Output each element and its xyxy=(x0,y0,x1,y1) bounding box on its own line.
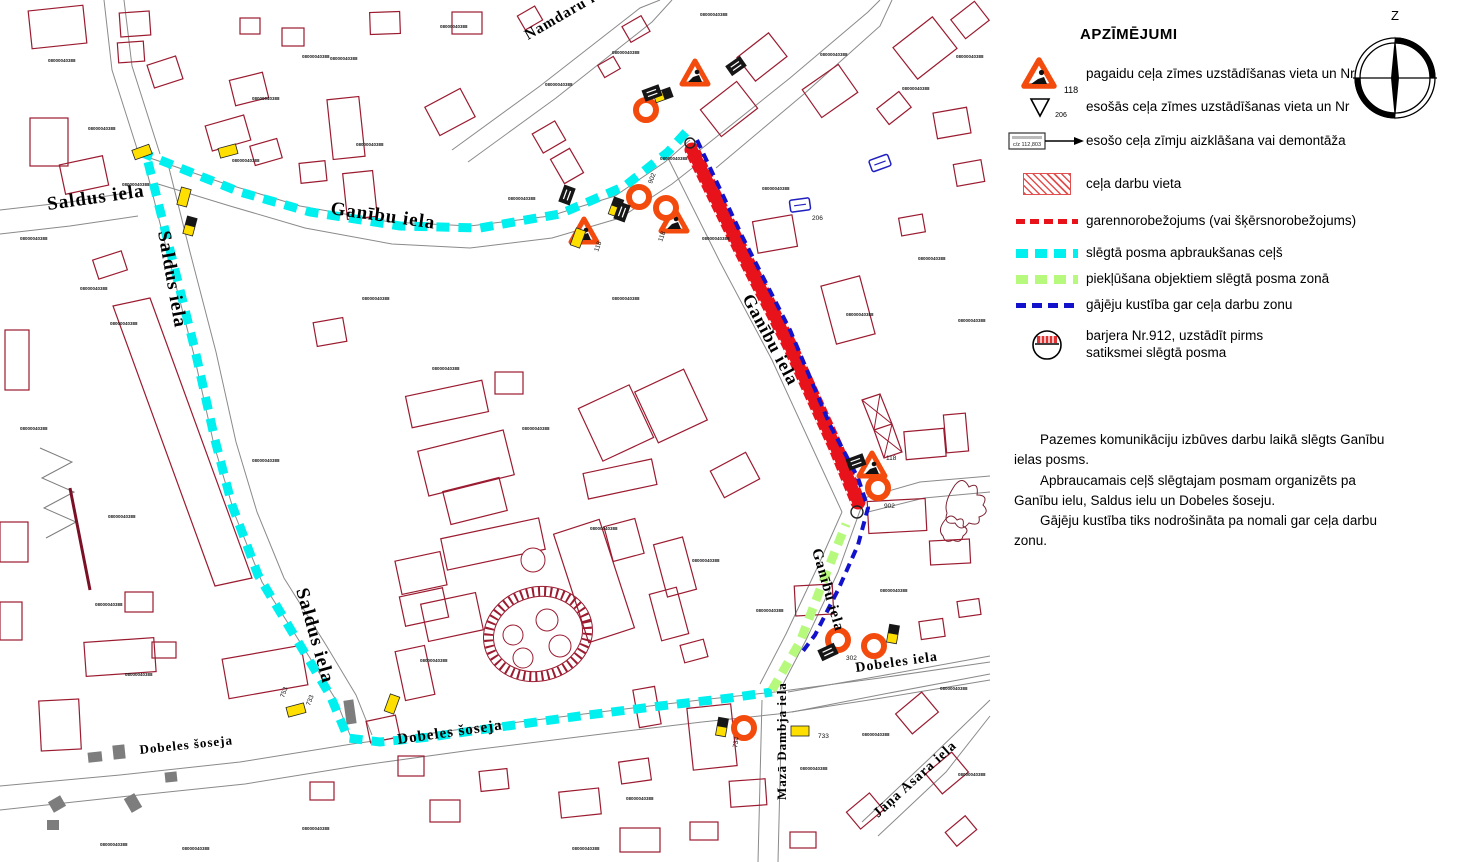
building-outline xyxy=(953,160,984,187)
building-outline xyxy=(559,788,601,818)
parcel-code: 08000040388 xyxy=(20,236,48,241)
building-outline xyxy=(532,121,566,153)
mast-tower xyxy=(862,394,902,458)
building-outline xyxy=(622,16,650,43)
parcel-code: 08000040388 xyxy=(252,96,280,101)
building-outline xyxy=(425,88,475,135)
building-outline xyxy=(30,118,68,166)
building-outline xyxy=(152,642,176,658)
sign-number: 733 xyxy=(818,733,829,740)
parcel-code: 08000040388 xyxy=(302,826,330,831)
sign-number: 118 xyxy=(886,455,897,462)
parcel-code: 08000040388 xyxy=(880,588,908,593)
building-outline xyxy=(282,28,304,46)
parcel-code: 08000040388 xyxy=(700,12,728,17)
tank xyxy=(536,609,558,631)
street-edge xyxy=(104,0,140,158)
building-outline xyxy=(554,519,635,642)
parcel-code: 08000040388 xyxy=(958,318,986,323)
street-edge xyxy=(468,0,672,162)
street-edge xyxy=(668,158,842,512)
access-route-swatch xyxy=(1016,275,1078,284)
building-outline xyxy=(943,413,968,453)
existing-sign-plate xyxy=(869,154,892,172)
parcel-code: 08000040388 xyxy=(626,796,654,801)
building-outline xyxy=(310,782,334,800)
parcel-code: 08000040388 xyxy=(362,296,390,301)
parcel-code: 08000040388 xyxy=(612,296,640,301)
building-outline xyxy=(680,639,708,663)
street-label: Ganību iela xyxy=(808,547,847,634)
building-outline xyxy=(904,428,946,459)
structure xyxy=(165,771,178,782)
sign-number: 302 xyxy=(846,655,857,662)
street-edge xyxy=(0,216,138,234)
vegetation-scribble xyxy=(946,480,986,528)
building-outline xyxy=(896,692,939,734)
structure xyxy=(47,820,59,830)
parcel-code: 08000040388 xyxy=(122,182,150,187)
building-outline xyxy=(147,56,183,88)
pedestrian-route-swatch xyxy=(1016,303,1078,308)
building-outline xyxy=(299,161,327,184)
legend-row-covered-sign: c/z 112,803 esošo ceļa zīmju aizklāšana … xyxy=(1008,128,1416,154)
sign-plate-dark xyxy=(725,56,747,76)
site-plan-map: Saldus ielaSaldus ielaSaldus ielaGanību … xyxy=(0,0,1000,862)
building-outline xyxy=(479,769,509,792)
street-label: Jāņa Asara iela xyxy=(871,738,960,821)
long-building-strip xyxy=(113,298,252,586)
parcel-code: 08000040388 xyxy=(95,602,123,607)
note-line: Pazemes komunikāciju izbūves darbu laikā… xyxy=(1014,430,1396,471)
building-outline xyxy=(39,699,82,751)
temp-sign-plate-yellow xyxy=(218,144,238,158)
building-outline xyxy=(737,33,787,81)
building-outline xyxy=(620,828,660,852)
temp-sign-plate-yellow xyxy=(183,216,197,236)
tank xyxy=(521,548,545,572)
parcel-code: 08000040388 xyxy=(522,426,550,431)
parcel-code: 08000040388 xyxy=(232,158,260,163)
building-outline xyxy=(929,539,970,565)
building-outline xyxy=(452,12,482,34)
detour-route-west xyxy=(148,162,772,742)
legend-row-red-dash: garennorobežojums (vai šķērsnorobežojums… xyxy=(1008,212,1416,230)
detour-route-swatch xyxy=(1016,249,1078,258)
street-label: Dobeles šoseja xyxy=(139,732,234,757)
sign-number: 734 xyxy=(732,736,741,748)
building-outline xyxy=(687,704,737,770)
building-outline xyxy=(598,56,621,77)
building-outline xyxy=(790,832,816,848)
temp-sign-plate-yellow xyxy=(570,228,586,248)
building-outline xyxy=(899,214,926,236)
parcel-code: 08000040388 xyxy=(100,842,128,847)
building-outline xyxy=(406,380,489,428)
temp-sign-plate-yellow xyxy=(887,624,900,643)
building-outline xyxy=(635,369,708,443)
structure xyxy=(112,744,125,759)
building-outline xyxy=(28,5,87,49)
legend-label: piekļūšana objektiem slēgtā posma zonā xyxy=(1086,271,1416,288)
parcel-code: 08000040388 xyxy=(182,846,210,851)
street-label: Mazā Dambja iela xyxy=(774,682,789,800)
parcel-code: 08000040388 xyxy=(420,658,448,663)
legend-sign-number: 206 xyxy=(1055,112,1067,119)
parcel-code: 08000040388 xyxy=(545,82,573,87)
covered-sign-icon: c/z 112,803 xyxy=(1008,129,1086,153)
building-outline xyxy=(945,816,976,847)
building-outline xyxy=(370,11,401,34)
work-area-swatch xyxy=(1023,173,1071,195)
building-outline xyxy=(125,592,153,612)
notes-block: Pazemes komunikāciju izbūves darbu laikā… xyxy=(1014,430,1396,552)
building-outline xyxy=(919,618,945,639)
parcel-code: 08000040388 xyxy=(252,458,280,463)
building-outline xyxy=(877,92,911,125)
building-outline xyxy=(0,522,28,562)
parcel-code: 08000040388 xyxy=(330,56,358,61)
parcel-code: 08000040388 xyxy=(940,686,968,691)
building-outline xyxy=(604,518,644,561)
parcel-code: 08000040388 xyxy=(48,58,76,63)
sign-number: 902 xyxy=(647,172,657,185)
legend-row-cyan-dash: slēgtā posma apbraukšanas ceļš xyxy=(1008,244,1416,262)
building-outline xyxy=(398,756,424,776)
mast-bracing xyxy=(862,394,902,458)
building-outline xyxy=(495,372,523,394)
building-outline xyxy=(240,18,260,34)
street-edge xyxy=(124,0,160,154)
building-outline xyxy=(421,593,484,642)
barrier-912-icon xyxy=(1008,328,1086,362)
temp-sign-plate-yellow xyxy=(791,726,809,736)
building-outline xyxy=(430,800,460,822)
parcel-code: 08000040388 xyxy=(660,156,688,161)
parcel-code: 08000040388 xyxy=(918,256,946,261)
barrier-912 xyxy=(636,100,656,120)
note-line: Apbraucamais ceļš slēgtajam posmam organ… xyxy=(1014,471,1396,512)
parcel-code: 08000040388 xyxy=(612,50,640,55)
building-outline xyxy=(710,452,759,497)
parcel-code: 08000040388 xyxy=(692,558,720,563)
barrier-912 xyxy=(629,187,649,207)
street-label: Dobeles šoseja xyxy=(396,717,503,748)
temp-sign-plate-yellow xyxy=(384,694,400,714)
existing-sign-plate xyxy=(789,198,810,213)
building-outline xyxy=(690,822,718,840)
parcel-code: 08000040388 xyxy=(800,766,828,771)
street-label: Saldus iela xyxy=(153,229,191,329)
compass-rose: Z xyxy=(1340,6,1450,131)
building-outline xyxy=(957,599,981,618)
street-edge xyxy=(168,164,372,735)
structure xyxy=(88,751,103,762)
tank xyxy=(503,625,523,645)
building-outline xyxy=(729,779,767,807)
street-edge xyxy=(700,0,880,150)
building-outline xyxy=(313,318,347,347)
building-outline xyxy=(649,587,688,641)
building-outline xyxy=(550,148,583,183)
temp-roadworks-sign-icon: 118 xyxy=(1008,53,1086,95)
parcel-code: 08000040388 xyxy=(88,126,116,131)
sign-number: 206 xyxy=(812,215,823,222)
building-outline xyxy=(84,638,156,677)
compass-north-label: Z xyxy=(1391,8,1399,23)
parcel-code: 08000040388 xyxy=(846,312,874,317)
building-outline xyxy=(395,645,435,700)
parcel-code: 08000040388 xyxy=(756,608,784,613)
sign-number: 733 xyxy=(305,694,315,707)
sign-plate-dark xyxy=(558,184,575,205)
vegetation-scribble xyxy=(940,516,967,541)
building-outline xyxy=(327,96,365,159)
tank xyxy=(549,635,571,657)
parcel-code: 08000040388 xyxy=(356,142,384,147)
parcel-code: 08000040388 xyxy=(80,286,108,291)
longitudinal-barrier-swatch xyxy=(1016,219,1078,224)
building-outline xyxy=(700,81,757,136)
building-outline xyxy=(951,1,989,38)
parcel-code: 08000040388 xyxy=(762,186,790,191)
parcel-code: 08000040388 xyxy=(125,672,153,677)
street-label: Ganību iela xyxy=(329,198,436,233)
legend-label: barjera Nr.912, uzstādīt pirms satiksmei… xyxy=(1086,328,1416,362)
parcel-code: 08000040388 xyxy=(702,236,730,241)
barrier-912 xyxy=(734,718,754,738)
parcel-code: 08000040388 xyxy=(302,54,330,59)
traffic-scheme-page: Saldus ielaSaldus ielaSaldus ielaGanību … xyxy=(0,0,1464,862)
building-outline xyxy=(619,758,652,784)
svg-text:c/z 112,803: c/z 112,803 xyxy=(1013,142,1041,148)
parcel-code: 08000040388 xyxy=(508,196,536,201)
parcel-code: 08000040388 xyxy=(20,426,48,431)
building-outline xyxy=(583,459,657,499)
sign-number: 902 xyxy=(884,503,895,510)
legend-title: APZĪMĒJUMI xyxy=(1080,26,1178,43)
building-outline xyxy=(821,276,875,344)
building-outline xyxy=(5,330,29,390)
parcel-code: 08000040388 xyxy=(590,526,618,531)
barrier-912 xyxy=(868,478,888,498)
parcel-code: 08000040388 xyxy=(110,321,138,326)
legend-label: gājēju kustība gar ceļa darbu zonu xyxy=(1086,297,1416,314)
building-outline xyxy=(893,17,957,79)
legend-label: esošo ceļa zīmju aizklāšana vai demontāž… xyxy=(1086,133,1416,150)
street-label: Saldus iela xyxy=(291,586,338,686)
street-edge xyxy=(716,0,892,168)
structure xyxy=(48,795,66,812)
legend-row-work-area: ceļa darbu vieta xyxy=(1008,168,1416,200)
building-outline xyxy=(802,64,858,117)
barrier-912 xyxy=(864,636,884,656)
temp-roadworks-sign xyxy=(682,61,708,84)
parcel-code: 08000040388 xyxy=(432,366,460,371)
wall-line xyxy=(70,488,90,590)
legend-label: garennorobežojums (vai šķērsnorobežojums… xyxy=(1086,213,1416,230)
temp-sign-plate-yellow xyxy=(286,703,306,717)
street-edge xyxy=(792,674,990,712)
parcel-code: 08000040388 xyxy=(108,514,136,519)
building-outline xyxy=(222,645,308,698)
parcel-code: 08000040388 xyxy=(902,86,930,91)
existing-sign-icon: 206 xyxy=(1008,95,1086,119)
parcel-code: 08000040388 xyxy=(956,54,984,59)
tank xyxy=(513,648,533,668)
building-outline xyxy=(933,107,971,139)
note-line: Gājēju kustība tiks nodrošināta pa nomal… xyxy=(1014,511,1396,552)
legend-label: ceļa darbu vieta xyxy=(1086,176,1416,193)
building-outline xyxy=(0,602,22,640)
building-outline xyxy=(578,385,653,461)
parcel-code: 08000040388 xyxy=(440,24,468,29)
parcel-code: 08000040388 xyxy=(862,732,890,737)
legend-row-barrier: barjera Nr.912, uzstādīt pirms satiksmei… xyxy=(1008,322,1416,368)
parcel-code: 08000040388 xyxy=(820,52,848,57)
building-outline xyxy=(93,251,128,279)
legend-label: slēgtā posma apbraukšanas ceļš xyxy=(1086,245,1416,262)
parcel-code: 08000040388 xyxy=(572,846,600,851)
building-outline xyxy=(867,499,927,534)
building-outline xyxy=(119,11,151,37)
street-edge xyxy=(758,700,762,862)
barrier-912 xyxy=(656,198,676,218)
legend-row-blue-dash: gājēju kustība gar ceļa darbu zonu xyxy=(1008,296,1416,314)
legend-row-green-dash: piekļūšana objektiem slēgtā posma zonā xyxy=(1008,270,1416,288)
building-outline xyxy=(753,215,798,253)
parcel-code: 08000040388 xyxy=(958,772,986,777)
